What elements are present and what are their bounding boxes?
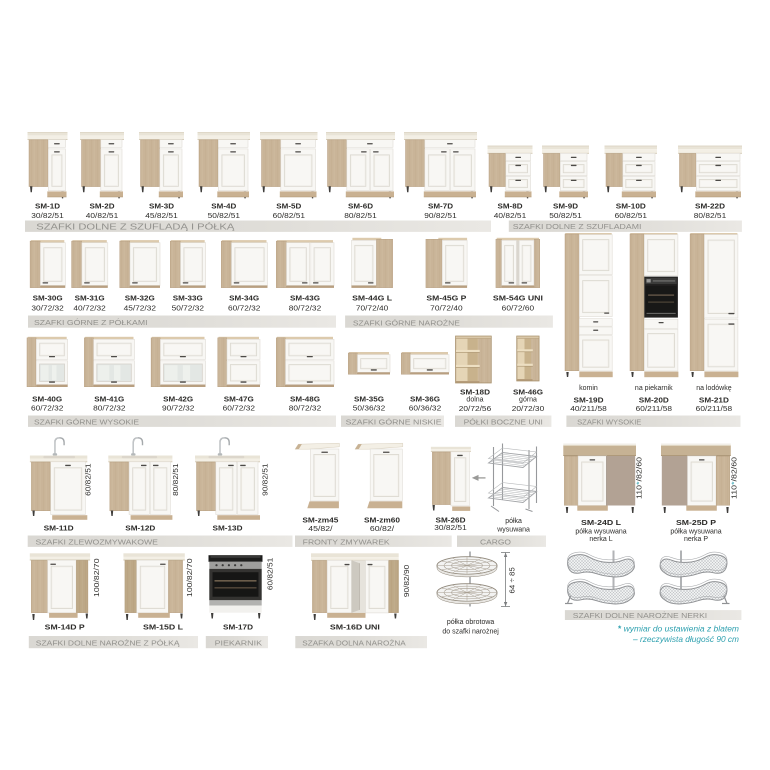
svg-text:60/211/58: 60/211/58 <box>696 404 732 413</box>
svg-text:FRONTY ZMYWAREK: FRONTY ZMYWAREK <box>303 537 390 546</box>
svg-text:do szafki narożnej: do szafki narożnej <box>442 629 499 636</box>
svg-text:SZAFKA DOLNA NAROŻNA: SZAFKA DOLNA NAROŻNA <box>302 638 406 647</box>
svg-text:SM-34G: SM-34G <box>229 294 259 303</box>
svg-text:* wymiar do ustawienia z blate: * wymiar do ustawienia z blatem <box>618 625 739 634</box>
svg-text:SM-44G L: SM-44G L <box>352 294 392 303</box>
svg-text:SM-3D: SM-3D <box>149 202 175 211</box>
svg-text:80/72/32: 80/72/32 <box>289 303 321 312</box>
svg-text:SZAFKI WYSOKIE: SZAFKI WYSOKIE <box>577 417 641 426</box>
svg-text:SZAFKI GÓRNE Z PÓŁKAMI: SZAFKI GÓRNE Z PÓŁKAMI <box>34 318 148 327</box>
svg-text:60/72/32: 60/72/32 <box>223 403 255 412</box>
svg-text:półka wysuwana: półka wysuwana <box>575 529 626 536</box>
svg-text:półka wysuwana: półka wysuwana <box>670 529 721 536</box>
svg-text:SM-25D P: SM-25D P <box>676 518 716 527</box>
svg-text:40/82/51: 40/82/51 <box>494 211 526 220</box>
svg-text:SM-54G UNI: SM-54G UNI <box>493 294 543 303</box>
svg-text:SM-22D: SM-22D <box>695 202 726 211</box>
svg-text:30/82/51: 30/82/51 <box>434 523 466 532</box>
svg-text:20/72/30: 20/72/30 <box>512 404 544 413</box>
svg-text:SM-43G: SM-43G <box>290 294 320 303</box>
svg-text:SM-13D: SM-13D <box>213 524 244 533</box>
svg-text:SM-32G: SM-32G <box>125 294 155 303</box>
svg-text:półka: półka <box>505 518 522 525</box>
svg-text:SZAFKI DOLNE NAROŻNE NERKI: SZAFKI DOLNE NAROŻNE NERKI <box>573 611 707 620</box>
svg-text:SM-42G: SM-42G <box>163 394 193 403</box>
svg-text:80/82/51: 80/82/51 <box>694 211 726 220</box>
svg-text:PÓŁKI BOCZNE UNI: PÓŁKI BOCZNE UNI <box>464 417 543 426</box>
svg-text:50/82/51: 50/82/51 <box>549 211 581 220</box>
svg-text:100/82/70: 100/82/70 <box>185 558 194 597</box>
svg-text:nerka L: nerka L <box>589 536 612 543</box>
svg-text:wysuwana: wysuwana <box>496 526 530 533</box>
svg-text:SM-17D: SM-17D <box>223 623 254 632</box>
svg-text:80/82/51: 80/82/51 <box>344 211 376 220</box>
svg-text:SM-5D: SM-5D <box>276 202 302 211</box>
svg-text:50/82/51: 50/82/51 <box>208 211 240 220</box>
svg-text:dolna: dolna <box>466 397 483 404</box>
svg-text:CARGO: CARGO <box>480 537 511 546</box>
svg-text:PIEKARNIK: PIEKARNIK <box>215 638 262 647</box>
svg-text:SZAFKI DOLNE Z SZUFLADĄ I PÓŁK: SZAFKI DOLNE Z SZUFLADĄ I PÓŁKĄ <box>36 221 235 231</box>
svg-text:45/82/: 45/82/ <box>308 524 333 533</box>
svg-text:SM-20D: SM-20D <box>639 395 670 404</box>
svg-text:SM-12D: SM-12D <box>125 524 156 533</box>
svg-text:64 ÷ 85: 64 ÷ 85 <box>507 567 516 593</box>
svg-text:45/82/51: 45/82/51 <box>145 211 177 220</box>
svg-text:półka obrotowa: półka obrotowa <box>447 619 495 626</box>
svg-text:SM-48G: SM-48G <box>290 394 320 403</box>
svg-text:110*/82/60: 110*/82/60 <box>730 457 739 499</box>
svg-text:60/82/51: 60/82/51 <box>273 211 305 220</box>
svg-text:SM-24D L: SM-24D L <box>581 518 621 527</box>
svg-text:45/72/32: 45/72/32 <box>124 303 156 312</box>
svg-text:60/211/58: 60/211/58 <box>636 404 672 413</box>
svg-text:górna: górna <box>519 397 537 404</box>
svg-text:60/72/60: 60/72/60 <box>502 303 534 312</box>
svg-text:80/82/51: 80/82/51 <box>171 464 180 496</box>
svg-text:SM-15D L: SM-15D L <box>143 623 183 632</box>
svg-text:SM-6D: SM-6D <box>348 202 374 211</box>
svg-text:SZAFKI GÓRNE NAROŻNE: SZAFKI GÓRNE NAROŻNE <box>353 318 460 327</box>
svg-text:SM-30G: SM-30G <box>33 294 63 303</box>
svg-text:60/82/51: 60/82/51 <box>84 464 93 496</box>
svg-text:60/36/32: 60/36/32 <box>409 403 441 412</box>
svg-text:SM-19D: SM-19D <box>574 395 605 404</box>
svg-text:SM-33G: SM-33G <box>173 294 203 303</box>
svg-text:60/82/: 60/82/ <box>370 524 395 533</box>
svg-text:SM-4D: SM-4D <box>211 202 237 211</box>
svg-text:SZAFKI GÓRNE NISKIE: SZAFKI GÓRNE NISKIE <box>346 417 442 426</box>
svg-text:80/72/32: 80/72/32 <box>93 403 125 412</box>
svg-text:na lodówkę: na lodówkę <box>696 385 732 392</box>
svg-text:40/82/51: 40/82/51 <box>86 211 118 220</box>
svg-text:70/72/40: 70/72/40 <box>356 303 388 312</box>
svg-text:SM-18D: SM-18D <box>460 387 491 396</box>
svg-text:SM-45G P: SM-45G P <box>426 294 466 303</box>
svg-text:SM-41G: SM-41G <box>94 394 124 403</box>
svg-text:SM-31G: SM-31G <box>75 294 105 303</box>
svg-text:SM-47G: SM-47G <box>224 394 254 403</box>
svg-text:nerka P: nerka P <box>684 536 708 543</box>
svg-text:SZAFKI GÓRNE WYSOKIE: SZAFKI GÓRNE WYSOKIE <box>34 417 139 426</box>
svg-text:60/82/51: 60/82/51 <box>615 211 647 220</box>
svg-text:SM-9D: SM-9D <box>553 202 579 211</box>
svg-text:SM-11D: SM-11D <box>44 524 75 533</box>
svg-text:100/82/70: 100/82/70 <box>92 558 101 597</box>
svg-text:SM-2D: SM-2D <box>90 202 116 211</box>
svg-text:30/72/32: 30/72/32 <box>31 303 63 312</box>
svg-text:SM-21D: SM-21D <box>699 395 730 404</box>
svg-text:SM-36G: SM-36G <box>410 394 440 403</box>
svg-text:90/82/90: 90/82/90 <box>402 565 411 597</box>
svg-text:SM-7D: SM-7D <box>428 202 454 211</box>
svg-text:50/72/32: 50/72/32 <box>172 303 204 312</box>
svg-text:110*/82/60: 110*/82/60 <box>635 457 644 499</box>
svg-text:SM-40G: SM-40G <box>32 394 62 403</box>
svg-text:80/72/32: 80/72/32 <box>289 403 321 412</box>
svg-text:30/82/51: 30/82/51 <box>31 211 63 220</box>
svg-text:50/36/32: 50/36/32 <box>353 403 385 412</box>
svg-text:– rzeczywista długość 90 cm: – rzeczywista długość 90 cm <box>632 635 739 644</box>
svg-text:70/72/40: 70/72/40 <box>430 303 462 312</box>
svg-text:60/72/32: 60/72/32 <box>228 303 260 312</box>
svg-text:SM-10D: SM-10D <box>616 202 647 211</box>
svg-text:20/72/56: 20/72/56 <box>459 404 491 413</box>
svg-text:SM-14D P: SM-14D P <box>45 623 85 632</box>
svg-text:SM-8D: SM-8D <box>498 202 524 211</box>
svg-text:SM-1D: SM-1D <box>35 202 61 211</box>
svg-text:komin: komin <box>579 385 598 392</box>
svg-text:SM-46G: SM-46G <box>513 387 543 396</box>
svg-text:SZAFKI DOLNE NAROŻNE Z PÓŁKĄ: SZAFKI DOLNE NAROŻNE Z PÓŁKĄ <box>36 638 181 647</box>
svg-text:90/82/51: 90/82/51 <box>261 464 270 496</box>
svg-text:na piekarnik: na piekarnik <box>635 385 673 392</box>
svg-text:90/82/51: 90/82/51 <box>424 211 456 220</box>
svg-text:SZAFKI DOLNE Z SZUFLADAMI: SZAFKI DOLNE Z SZUFLADAMI <box>513 222 642 231</box>
svg-text:60/72/32: 60/72/32 <box>31 403 63 412</box>
svg-text:SM-35G: SM-35G <box>354 394 384 403</box>
svg-text:SZAFKI ZLEWOZMYWAKOWE: SZAFKI ZLEWOZMYWAKOWE <box>36 537 159 546</box>
svg-text:40/72/32: 40/72/32 <box>73 303 105 312</box>
svg-text:90/72/32: 90/72/32 <box>162 403 194 412</box>
svg-text:SM-16D UNI: SM-16D UNI <box>330 623 380 632</box>
svg-text:60/82/51: 60/82/51 <box>266 558 275 590</box>
svg-text:40/211/58: 40/211/58 <box>570 404 606 413</box>
